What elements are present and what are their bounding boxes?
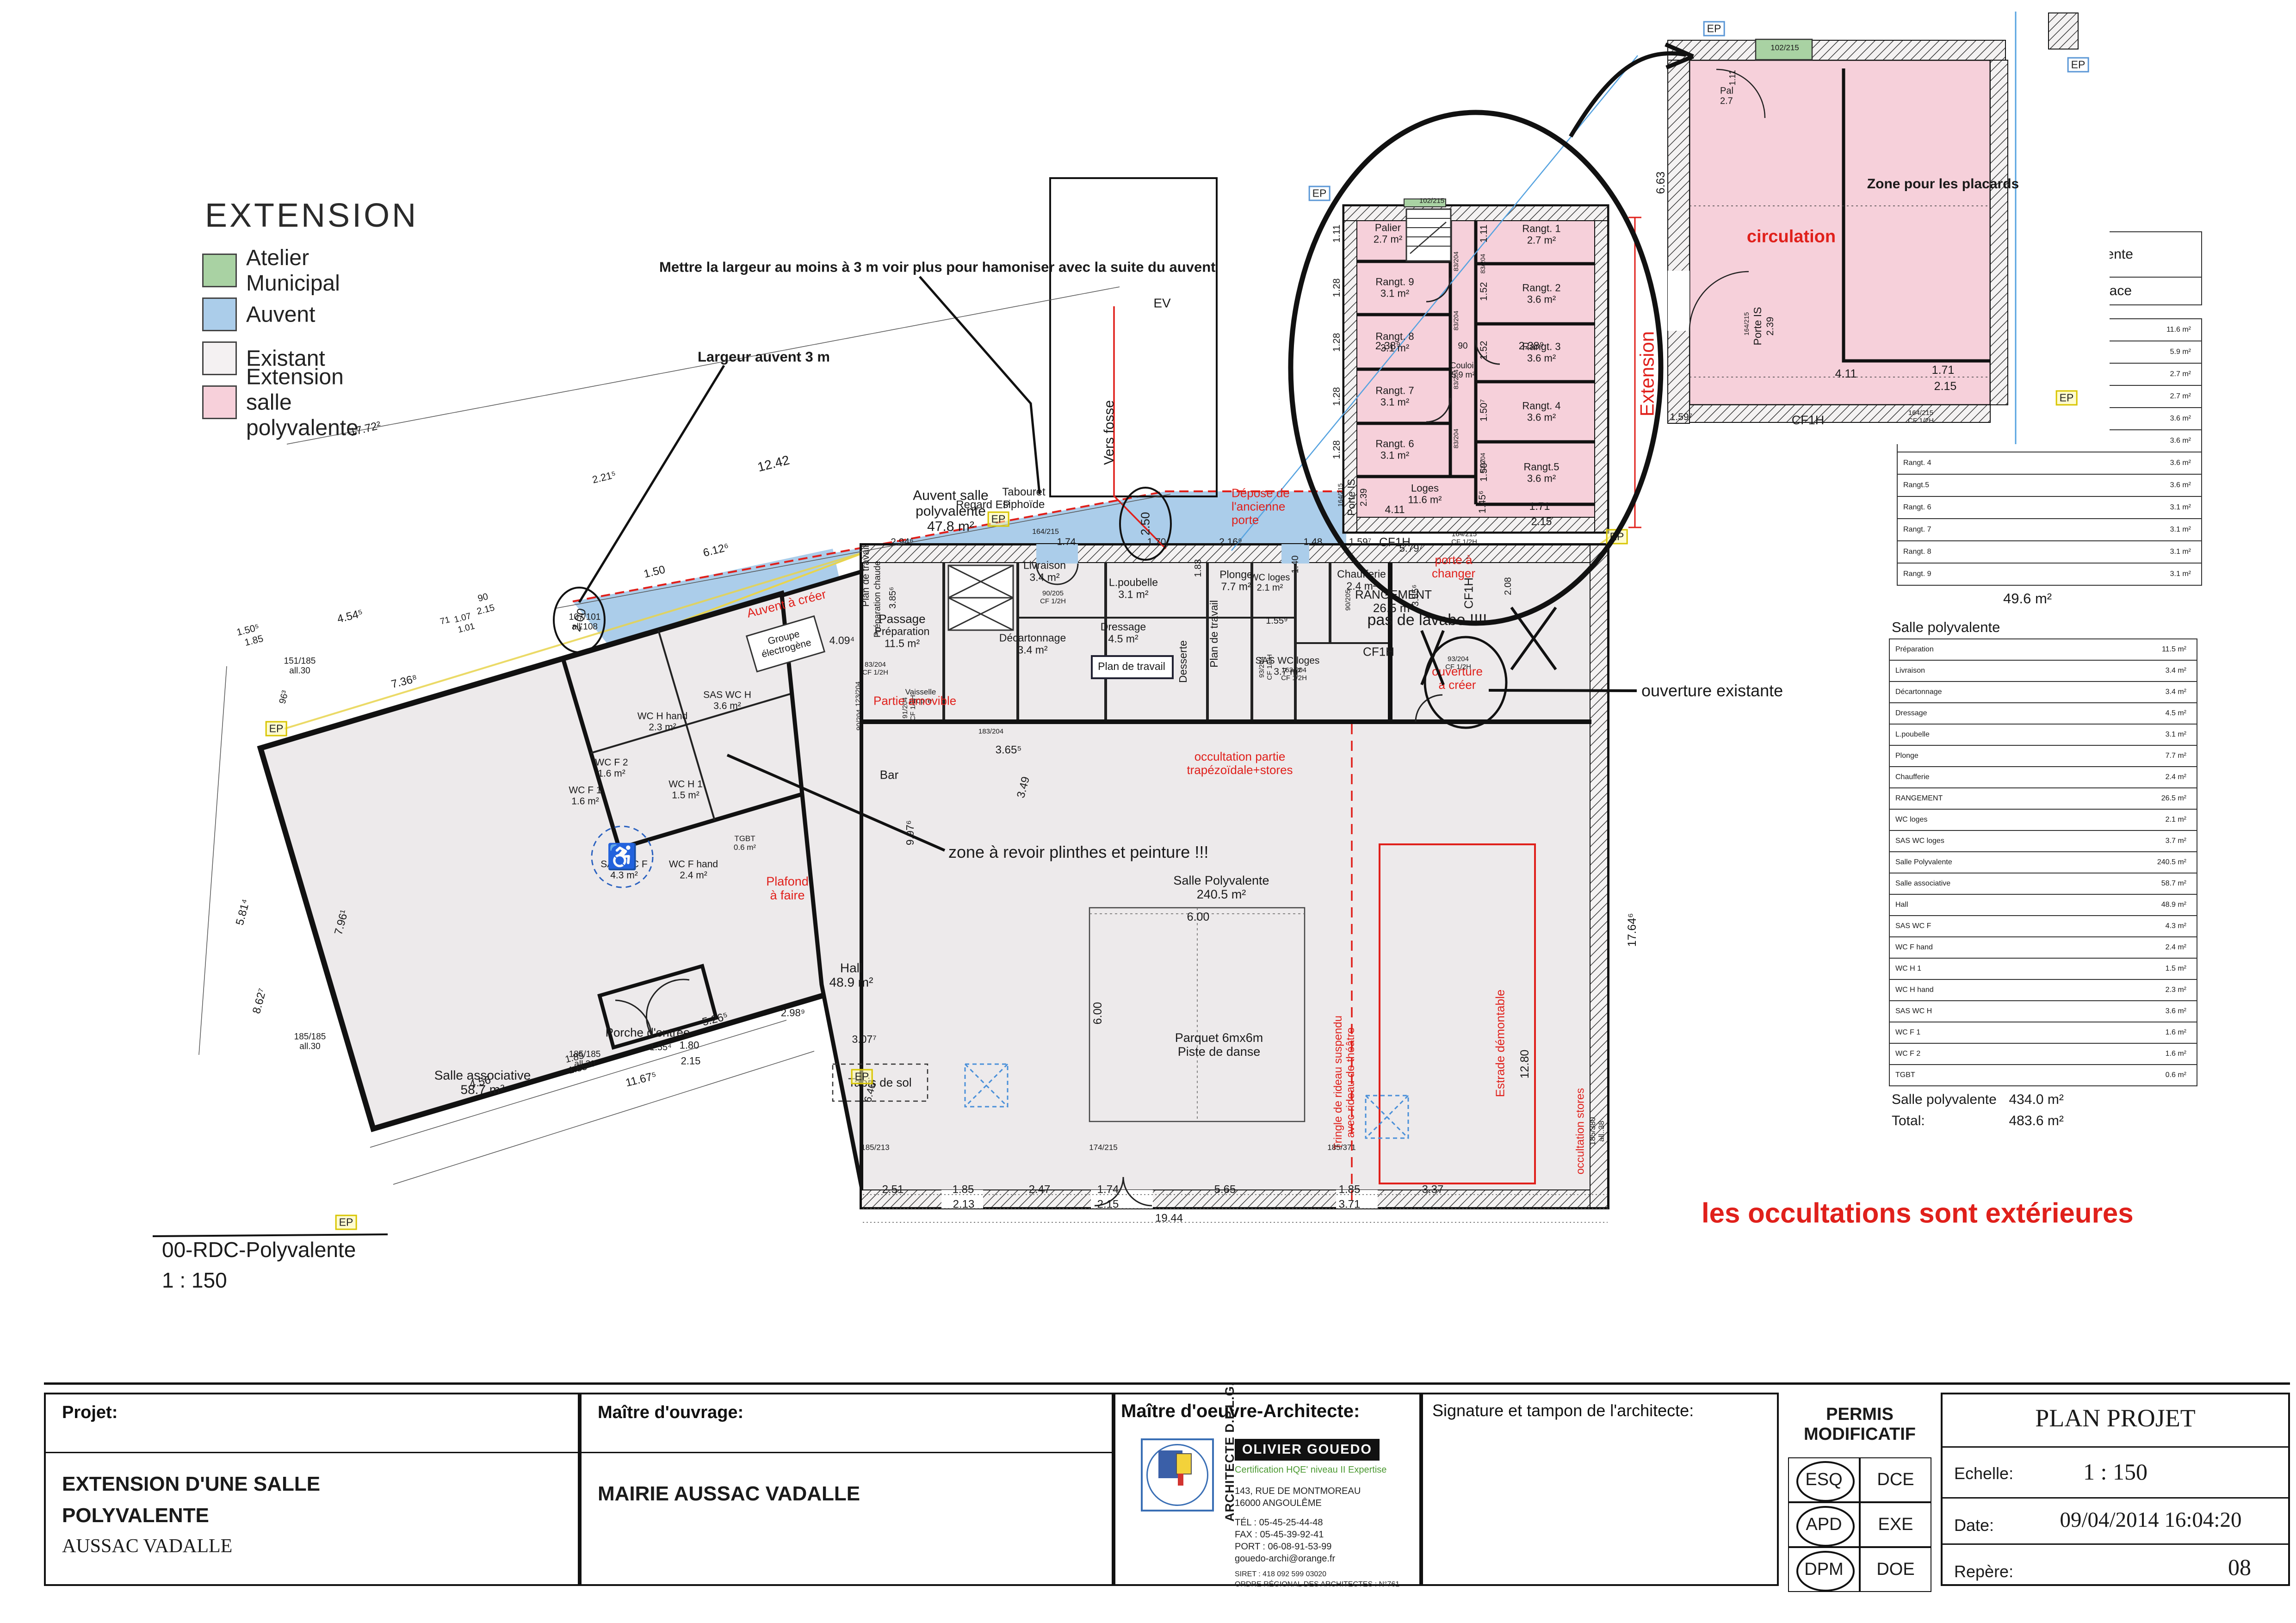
table-row-label: Rangt. 4 [1898,457,2070,469]
architecte-siret: SIRET : 418 092 599 03020 [1235,1569,1399,1580]
table-row: Rangt. 43.6 m² [1897,452,2202,475]
table-row-value: 3.1 m² [2070,568,2201,580]
architect-logo [1141,1438,1214,1511]
architecte-box: Maître d'oeuvre-Architecte: ARCHITECTE D… [1114,1393,1421,1586]
legend-swatch-0 [202,254,237,287]
ouvrage-box: Maître d'ouvrage: MAIRIE AUSSAC VADALLE [580,1393,1114,1586]
stair [1406,209,1451,261]
permis-oval [1796,1506,1855,1547]
permis-oval [1796,1551,1855,1592]
table-row: TGBT0.6 m² [1889,1065,2197,1086]
summary-label: Total: [1889,1113,2009,1129]
projet-label: Projet: [62,1403,118,1423]
table-row: Rangt. 93.1 m² [1897,564,2202,586]
projet-value: EXTENSION D'UNE SALLE POLYVALENTE AUSSAC… [62,1468,320,1561]
table-row-value: 3.4 m² [2064,665,2197,677]
summary-label: Salle polyvalente [1889,1092,2009,1108]
table-summary-row: Salle polyvalente434.0 m² [1889,1089,2197,1110]
table-row: Décartonnage3.4 m² [1889,682,2197,703]
table-row-value: 48.9 m² [2064,899,2197,911]
echelle-value: 1 : 150 [1943,1458,2288,1485]
table-row-label: RANGEMENT [1890,793,2064,805]
table-row: Chaufferie2.4 m² [1889,767,2197,788]
table-row-value: 11.5 m² [2064,644,2197,656]
permis-cell-dce: DCE [1860,1457,1931,1502]
table-row-value: 2.4 m² [2064,771,2197,783]
table-row-label: Chaufferie [1890,771,2064,783]
table-row-label: WC F 2 [1890,1048,2064,1060]
table-row: Rangt. 83.1 m² [1897,541,2202,564]
table-row: WC F hand2.4 m² [1889,937,2197,959]
table-row-value: 3.4 m² [2064,686,2197,698]
table-row-value: 4.3 m² [2064,920,2197,932]
table-row-label: WC F hand [1890,942,2064,954]
table-row-value: 3.6 m² [2070,479,2201,491]
table-row: Rangt.53.6 m² [1897,475,2202,497]
table-row-value: 240.5 m² [2064,856,2197,868]
permis-cell-exe: EXE [1860,1502,1931,1547]
table-summary-row: Total:483.6 m² [1889,1110,2197,1132]
table-row-label: Hall [1890,899,2064,911]
table-row: Salle associative58.7 m² [1889,873,2197,895]
ouvrage-label: Maître d'ouvrage: [598,1403,743,1423]
salle-table-title: Salle polyvalente [1889,619,2197,638]
table-row-value: 2.1 m² [2064,814,2197,826]
salle-area-table: Salle polyvalente Préparation11.5 m²Livr… [1889,619,2197,1132]
existing-building [861,544,1608,1208]
worktop-box [1092,656,1173,678]
projet-box: Projet: EXTENSION D'UNE SALLE POLYVALENT… [44,1393,580,1586]
table-row-label: Livraison [1890,665,2064,677]
table-row-label: WC loges [1890,814,2064,826]
table-row: Rangt. 73.1 m² [1897,519,2202,541]
permis-cell-doe: DOE [1860,1547,1931,1592]
table-row-label: TGBT [1890,1069,2064,1081]
ouvrage-value: MAIRIE AUSSAC VADALLE [598,1482,860,1505]
permis-box: PERMIS MODIFICATIF ESQDCEAPDEXEDPMDOE [1779,1393,1941,1586]
architectural-drawing-sheet: { "colors":{ "red":"#e0201b","hblue":"#2… [0,0,2296,1623]
signature-label: Signature et tampon de l'architecte: [1432,1401,1694,1420]
table-row-value: 26.5 m² [2064,793,2197,805]
table-row-value: 2.4 m² [2064,942,2197,954]
legend-title: EXTENSION [205,197,418,235]
table-row-value: 3.7 m² [2064,835,2197,847]
annex-wing [260,571,894,1191]
architecte-label: Maître d'oeuvre-Architecte: [1121,1401,1360,1422]
table-row: WC H hand2.3 m² [1889,980,2197,1001]
table-row-value: 3.6 m² [2070,457,2201,469]
repere-value: 08 [2228,1554,2251,1580]
repere-label: Repère: [1954,1562,2013,1581]
table-row-label: Rangt. 9 [1898,568,2070,580]
table-row-label: Salle Polyvalente [1890,856,2064,868]
table-row: Salle Polyvalente240.5 m² [1889,852,2197,873]
permis-title: PERMIS MODIFICATIF [1779,1405,1941,1444]
table-row: WC H 11.5 m² [1889,959,2197,980]
date-label: Date: [1954,1516,1994,1535]
table-row: WC F 11.6 m² [1889,1022,2197,1044]
table-row-value: 3.1 m² [2064,729,2197,741]
architecte-coords: 143, RUE DE MONTMOREAU 16000 ANGOULÊME T… [1235,1485,1361,1565]
table-row: SAS WC F4.3 m² [1889,916,2197,937]
table-row: Rangt. 63.1 m² [1897,497,2202,519]
table-row-value: 1.5 m² [2064,963,2197,975]
table-row-label: SAS WC H [1890,1005,2064,1017]
table-row-label: Rangt. 6 [1898,502,2070,514]
permis-oval [1796,1461,1855,1502]
table-row-label: SAS WC F [1890,920,2064,932]
table-row-label: Rangt. 8 [1898,546,2070,558]
table-row: Dressage4.5 m² [1889,703,2197,725]
table-row-value: 0.6 m² [2064,1069,2197,1081]
table-row-value: 3.1 m² [2070,524,2201,536]
table-row-label: WC F 1 [1890,1027,2064,1039]
table-row-label: Dressage [1890,707,2064,719]
legend-swatch-3 [202,385,237,419]
table-row-value: 3.1 m² [2070,546,2201,558]
table-row-label: Salle associative [1890,878,2064,890]
legend-label-0: Atelier Municipal [246,245,340,296]
table-row-label: WC H 1 [1890,963,2064,975]
signature-box: Signature et tampon de l'architecte: [1421,1393,1779,1586]
table-row-value: 3.1 m² [2070,502,2201,514]
summary-value: 434.0 m² [2009,1092,2063,1108]
table-row-label: Rangt. 7 [1898,524,2070,536]
table-row: Hall48.9 m² [1889,895,2197,916]
summary-value: 483.6 m² [2009,1113,2063,1129]
table-row-label: WC H hand [1890,984,2064,996]
table-row-label: Décartonnage [1890,686,2064,698]
table-row-label: Rangt.5 [1898,479,2070,491]
table-row: RANGEMENT26.5 m² [1889,788,2197,810]
plan-projet-title: PLAN PROJET [1943,1404,2288,1432]
kitchen-closets [948,565,1013,630]
table-row-value: 2.3 m² [2064,984,2197,996]
table-row: WC loges2.1 m² [1889,810,2197,831]
detail-extension-room [1690,60,1990,405]
table-row: Préparation11.5 m² [1889,639,2197,661]
green-door [1404,199,1446,207]
table-row: SAS WC loges3.7 m² [1889,831,2197,852]
plan-projet-box: PLAN PROJET Echelle: 1 : 150 Date: 09/04… [1941,1393,2290,1586]
table-row: SAS WC H3.6 m² [1889,1001,2197,1022]
extension-table-total: 49.6 m² [1897,586,2202,607]
table-row: Plonge7.7 m² [1889,746,2197,767]
detail-green-door [1756,39,1812,60]
architecte-ordre: ORDRE RÉGIONAL DES ARCHITECTES : N°761 [1235,1580,1399,1590]
table-row-value: 3.6 m² [2064,1005,2197,1017]
legend-swatch-2 [202,341,237,375]
detail-inset [1665,12,2110,444]
table-row-value: 1.6 m² [2064,1048,2197,1060]
date-value: 09/04/2014 16:04:20 [2017,1507,2285,1532]
table-row: Livraison3.4 m² [1889,661,2197,682]
extension-block [1344,199,1641,532]
legend-label-3: Extension salle polyvalente [246,365,359,441]
door-gap [1281,544,1309,564]
table-row-value: 7.7 m² [2064,750,2197,762]
table-row-label: Préparation [1890,644,2064,656]
table-row-label: Plonge [1890,750,2064,762]
door-gap [1036,544,1078,564]
table-row-label: SAS WC loges [1890,835,2064,847]
table-row-value: 4.5 m² [2064,707,2197,719]
architecte-cert: Certification HQE' niveau II Expertise [1235,1465,1386,1475]
legend-label-1: Auvent [246,302,315,328]
table-row-value: 1.6 m² [2064,1027,2197,1039]
table-row: WC F 21.6 m² [1889,1044,2197,1065]
legend-swatch-1 [202,297,237,331]
table-row-value: 58.7 m² [2064,878,2197,890]
table-row-label: L.poubelle [1890,729,2064,741]
title-block: Projet: EXTENSION D'UNE SALLE POLYVALENT… [0,1381,2296,1623]
architecte-name: OLIVIER GOUEDO [1235,1439,1380,1461]
table-row: L.poubelle3.1 m² [1889,725,2197,746]
